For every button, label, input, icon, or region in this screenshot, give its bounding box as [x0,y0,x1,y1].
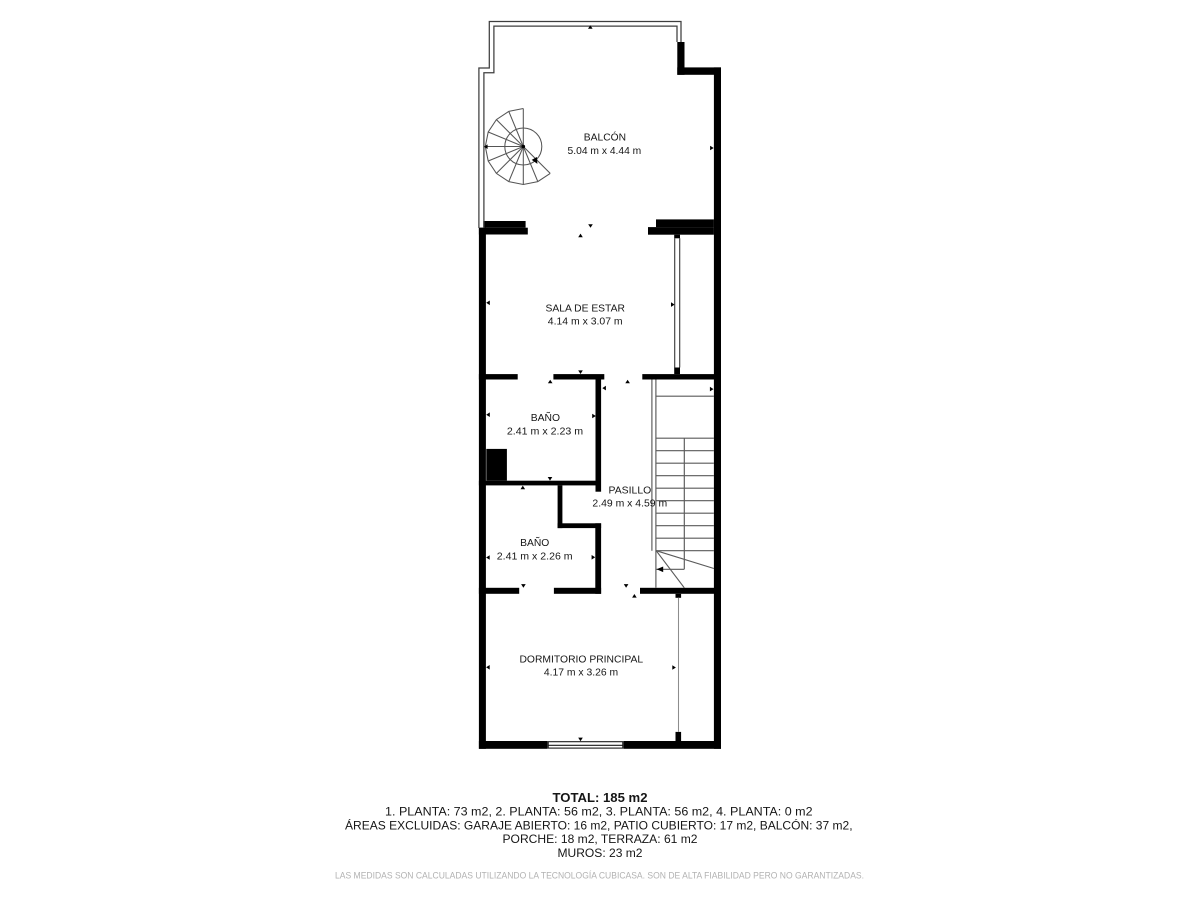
svg-text:1. PLANTA: 73 m2, 2. PLANTA: 5: 1. PLANTA: 73 m2, 2. PLANTA: 56 m2, 3. P… [385,805,813,819]
svg-text:5.04 m x 4.44 m: 5.04 m x 4.44 m [568,145,642,157]
svg-text:ÁREAS EXCLUIDAS: GARAJE ABIERT: ÁREAS EXCLUIDAS: GARAJE ABIERTO: 16 m2, … [345,817,853,832]
svg-text:2.41 m x 2.26 m: 2.41 m x 2.26 m [497,550,573,562]
svg-text:PORCHE: 18 m2, TERRAZA: 61 m2: PORCHE: 18 m2, TERRAZA: 61 m2 [503,832,698,846]
svg-text:MUROS: 23 m2: MUROS: 23 m2 [558,846,643,860]
svg-text:LAS MEDIDAS SON CALCULADAS UTI: LAS MEDIDAS SON CALCULADAS UTILIZANDO LA… [335,871,864,881]
svg-text:TOTAL: 185 m2: TOTAL: 185 m2 [553,790,648,805]
svg-text:BAÑO: BAÑO [520,536,549,549]
svg-text:SALA DE ESTAR: SALA DE ESTAR [546,302,626,314]
svg-text:BAÑO: BAÑO [531,411,560,424]
svg-text:2.41 m x 2.23 m: 2.41 m x 2.23 m [507,425,583,437]
svg-text:2.49 m x 4.59 m: 2.49 m x 4.59 m [592,498,667,510]
svg-text:DORMITORIO PRINCIPAL: DORMITORIO PRINCIPAL [519,653,643,665]
svg-text:4.17 m x 3.26 m: 4.17 m x 3.26 m [544,667,619,679]
svg-text:BALCÓN: BALCÓN [584,131,626,144]
svg-text:PASILLO: PASILLO [609,485,652,497]
svg-text:4.14 m x 3.07 m: 4.14 m x 3.07 m [548,316,623,328]
